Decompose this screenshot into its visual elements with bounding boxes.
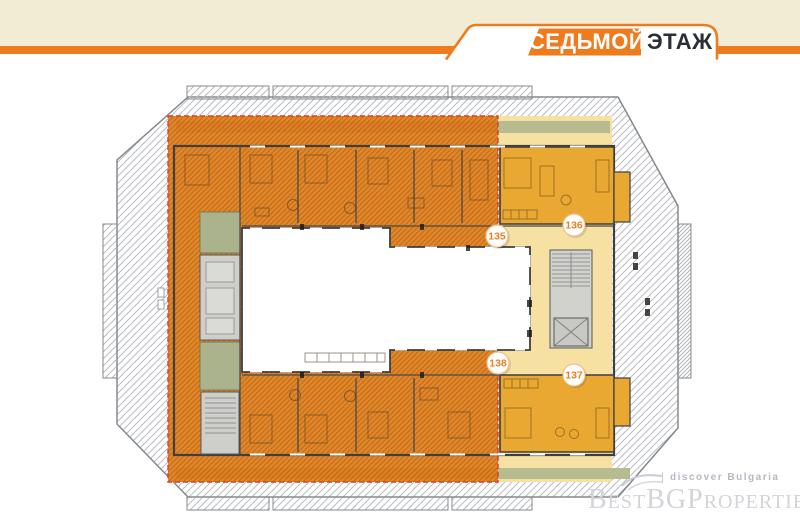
roof-bump <box>187 86 269 99</box>
roof-bump <box>187 497 269 510</box>
badge-138-label: 138 <box>489 358 507 370</box>
floor-plan-canvas: 135 136 138 137 СЕДЬМОЙ Э <box>0 0 800 520</box>
floor-label-secondary: ЭТАЖ <box>647 29 712 54</box>
roof-bump <box>452 86 532 99</box>
floor-label-primary: СЕДЬМОЙ <box>529 29 645 54</box>
plan-symbol <box>158 300 164 309</box>
terrace-strip-top-right <box>498 121 610 133</box>
apartment-136-region[interactable] <box>500 147 614 224</box>
badge-135-label: 135 <box>488 231 506 243</box>
badge-136-label: 136 <box>565 220 583 232</box>
balcony-top-right <box>614 172 630 222</box>
plan-symbol <box>158 288 164 297</box>
roof-bump <box>273 497 448 510</box>
header: СЕДЬМОЙ ЭТАЖ <box>0 0 800 60</box>
roof-bump-left <box>103 224 117 378</box>
page: 135 136 138 137 СЕДЬМОЙ Э <box>0 0 800 520</box>
balcony-bottom-right <box>614 378 630 426</box>
roof-bump-right <box>678 224 691 378</box>
terrace-strip-bottom-right <box>498 468 630 479</box>
roof-bump <box>452 497 532 510</box>
building-plot: 135 136 138 137 <box>168 116 650 482</box>
roof-bump <box>273 86 448 99</box>
apartment-137-region[interactable] <box>500 375 614 452</box>
stair-core-right <box>550 250 592 348</box>
badge-137-label: 137 <box>565 370 583 382</box>
core-column-left <box>200 212 240 454</box>
